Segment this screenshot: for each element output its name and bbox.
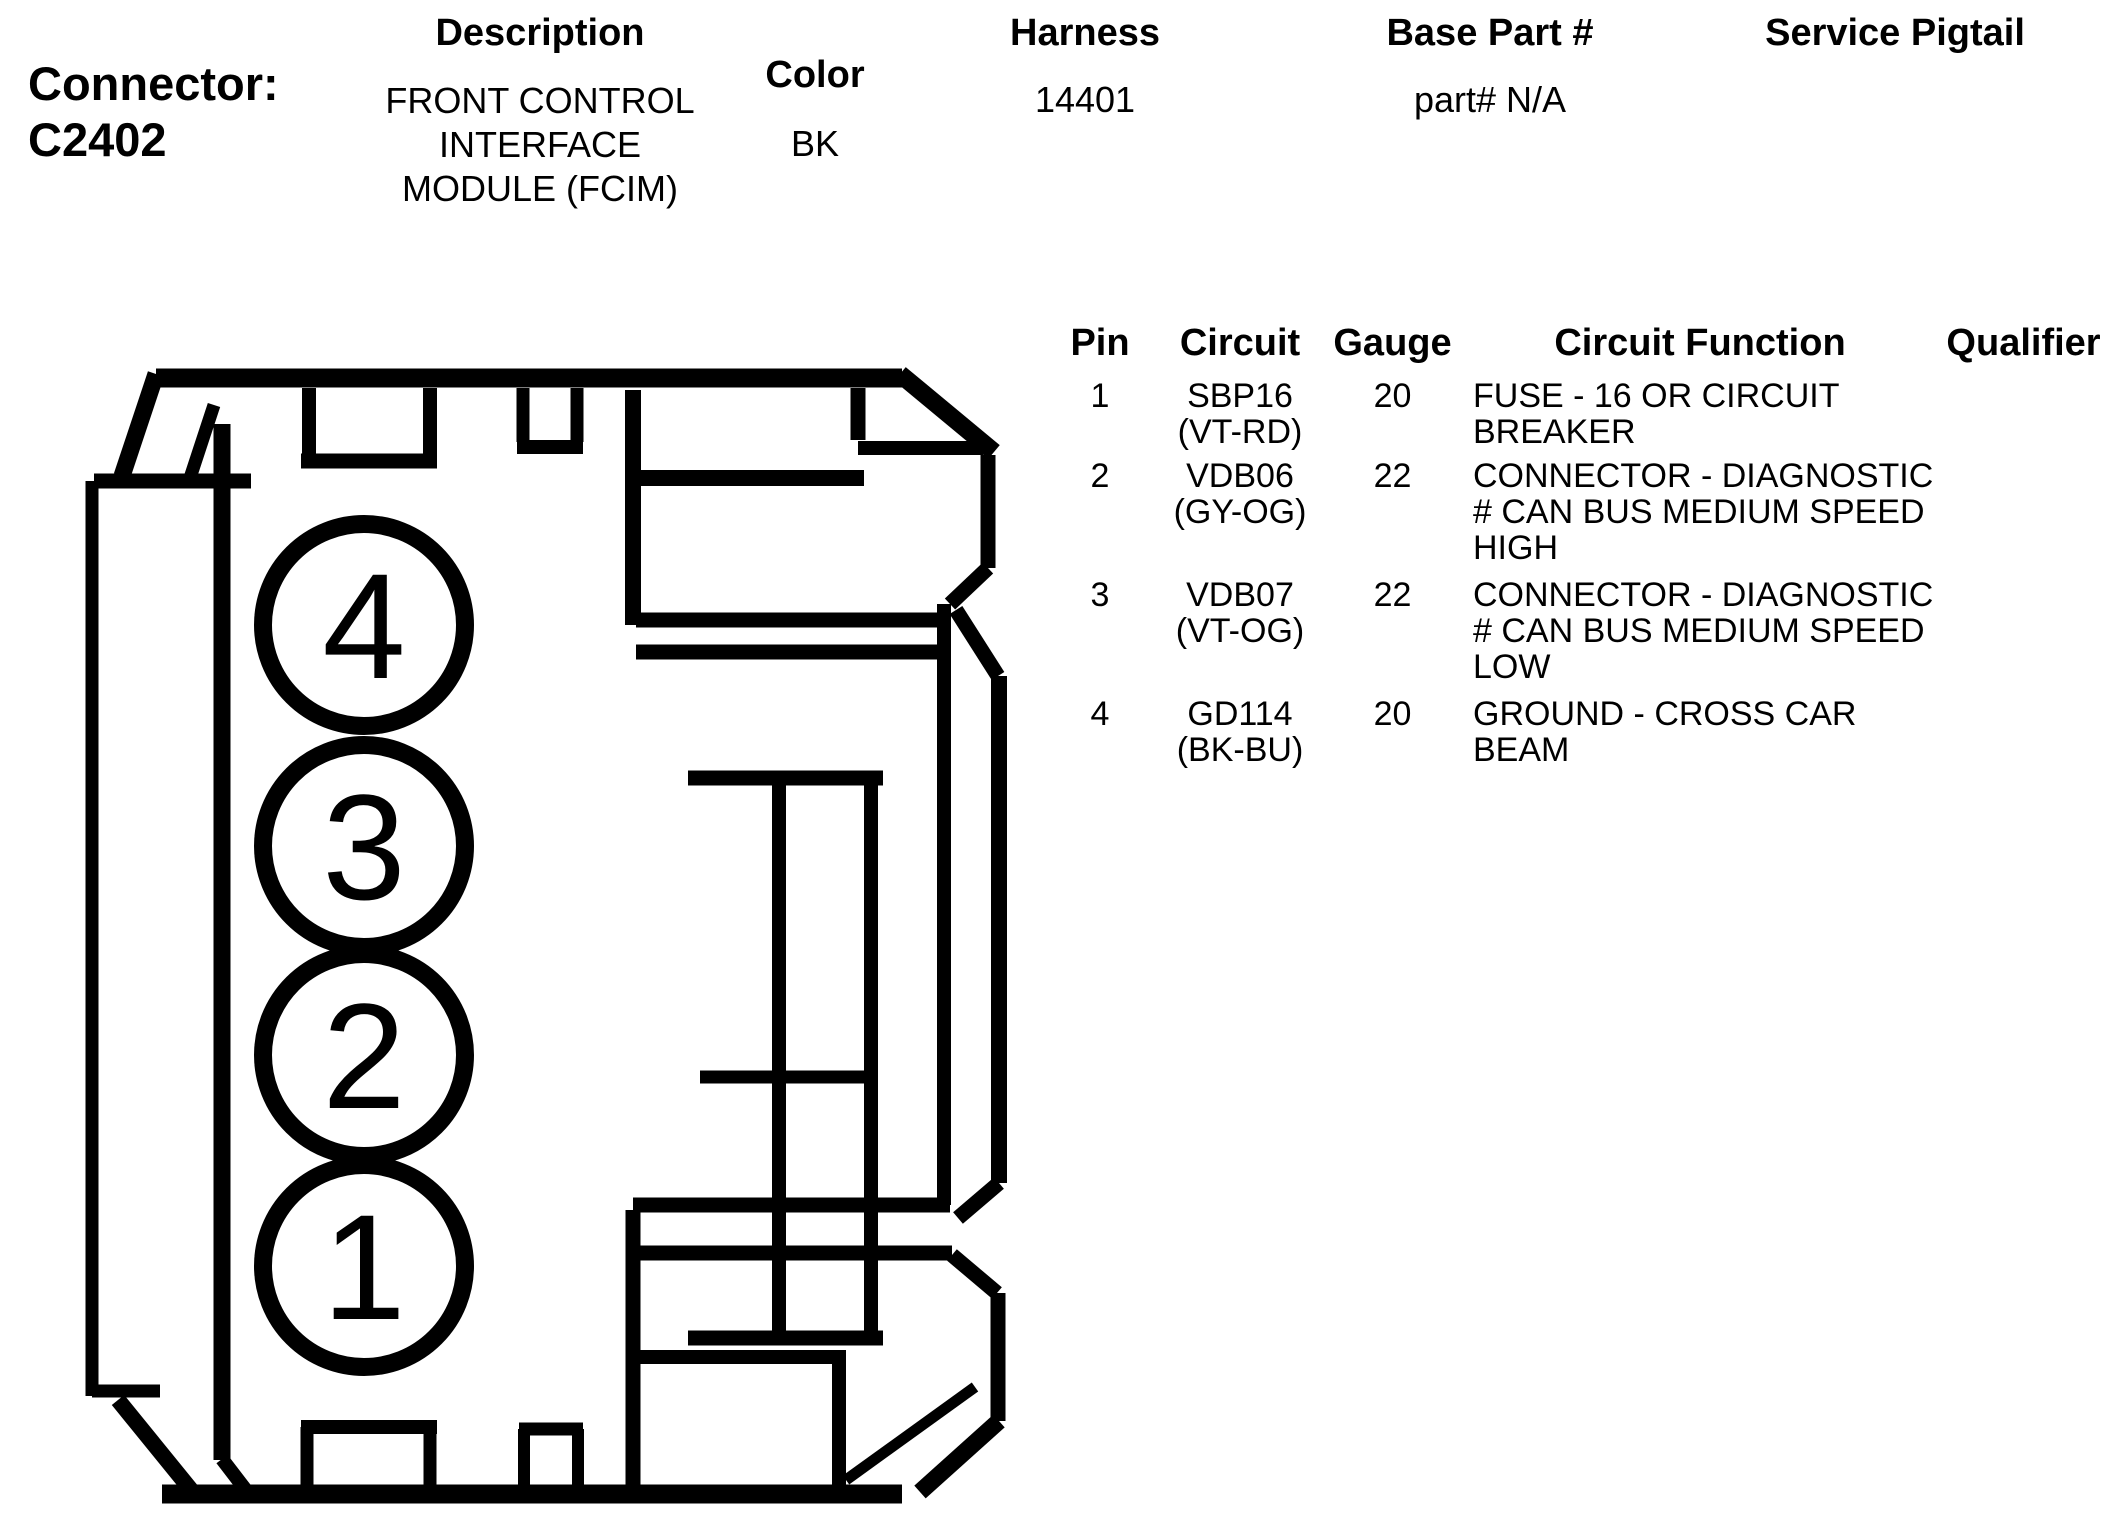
function-line: HIGH <box>1473 530 1935 566</box>
col-header-circuit: Circuit <box>1160 322 1320 365</box>
pin-table: Pin Circuit Gauge Circuit Function Quali… <box>1040 322 2112 792</box>
page: Connector: C2402 Description FRONT CONTR… <box>0 0 2112 1540</box>
cell-gauge: 22 <box>1320 577 1465 613</box>
cell-circuit: VDB06 (GY-OG) <box>1160 458 1320 530</box>
circuit-color: (GY-OG) <box>1160 494 1320 530</box>
base-part-label: Base Part # <box>1340 12 1640 55</box>
col-header-qualifier: Qualifier <box>1935 322 2112 365</box>
pin-number-label: 4 <box>322 542 405 710</box>
circuit-color: (VT-OG) <box>1160 613 1320 649</box>
cell-gauge: 22 <box>1320 458 1465 494</box>
function-line: GROUND - CROSS CAR <box>1473 696 1935 732</box>
function-line: BEAM <box>1473 732 1935 768</box>
cell-gauge: 20 <box>1320 378 1465 414</box>
function-line: BREAKER <box>1473 414 1935 450</box>
pin-number-label: 2 <box>322 972 405 1140</box>
cell-function: CONNECTOR - DIAGNOSTIC # CAN BUS MEDIUM … <box>1465 577 1935 685</box>
cell-circuit: VDB07 (VT-OG) <box>1160 577 1320 649</box>
cell-circuit: SBP16 (VT-RD) <box>1160 378 1320 450</box>
circuit-id: VDB06 <box>1160 458 1320 494</box>
circuit-color: (BK-BU) <box>1160 732 1320 768</box>
function-line: FUSE - 16 OR CIRCUIT <box>1473 378 1935 414</box>
service-pigtail-label: Service Pigtail <box>1730 12 2060 55</box>
function-line: LOW <box>1473 649 1935 685</box>
circuit-id: VDB07 <box>1160 577 1320 613</box>
cell-function: CONNECTOR - DIAGNOSTIC # CAN BUS MEDIUM … <box>1465 458 1935 566</box>
function-line: # CAN BUS MEDIUM SPEED <box>1473 613 1935 649</box>
base-part-value: part# N/A <box>1340 79 1640 121</box>
housing-outline <box>92 374 999 1496</box>
cell-function: FUSE - 16 OR CIRCUIT BREAKER <box>1465 378 1935 450</box>
pin-number-label: 1 <box>322 1183 405 1351</box>
function-line: # CAN BUS MEDIUM SPEED <box>1473 494 1935 530</box>
cell-function: GROUND - CROSS CAR BEAM <box>1465 696 1935 768</box>
function-line: CONNECTOR - DIAGNOSTIC <box>1473 458 1935 494</box>
base-part-block: Base Part # part# N/A <box>1340 12 1640 121</box>
cell-gauge: 20 <box>1320 696 1465 732</box>
connector-housing-drawing: 4 3 2 1 <box>0 0 1060 1540</box>
function-line: CONNECTOR - DIAGNOSTIC <box>1473 577 1935 613</box>
circuit-color: (VT-RD) <box>1160 414 1320 450</box>
circuit-id: SBP16 <box>1160 378 1320 414</box>
cell-circuit: GD114 (BK-BU) <box>1160 696 1320 768</box>
col-header-gauge: Gauge <box>1320 322 1465 365</box>
col-header-function: Circuit Function <box>1465 322 1935 365</box>
pin-number-label: 3 <box>322 763 405 931</box>
circuit-id: GD114 <box>1160 696 1320 732</box>
pin-cavities: 4 3 2 1 <box>263 524 465 1367</box>
service-pigtail-block: Service Pigtail <box>1730 12 2060 79</box>
